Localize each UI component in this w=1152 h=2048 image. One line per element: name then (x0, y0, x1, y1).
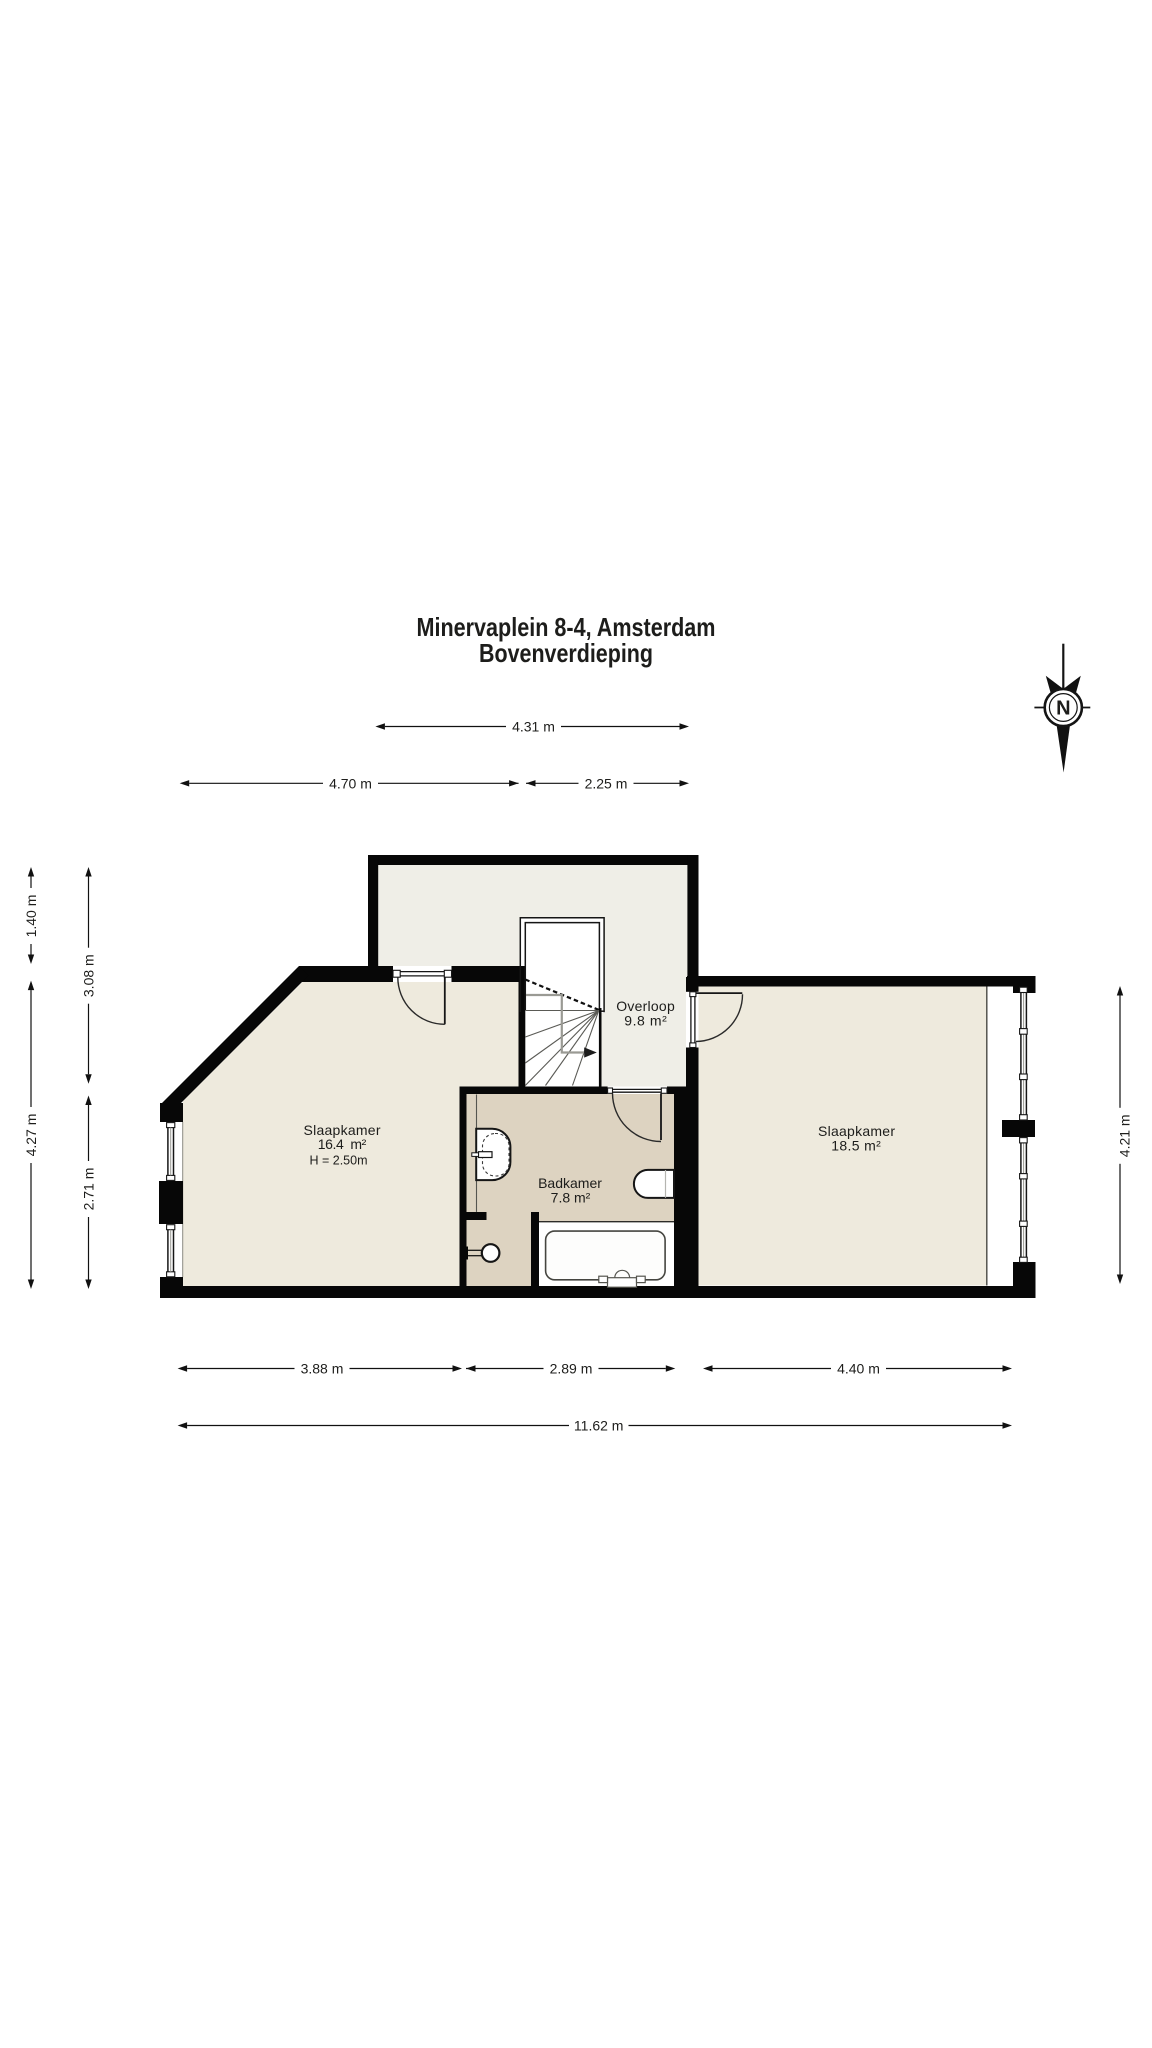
svg-text:16.4 m²: 16.4 m² (318, 1136, 367, 1152)
svg-text:Bovenverdieping: Bovenverdieping (479, 638, 653, 668)
svg-text:2.71 m: 2.71 m (81, 1168, 97, 1211)
svg-text:4.31 m: 4.31 m (512, 719, 555, 735)
svg-text:2.89 m: 2.89 m (550, 1361, 593, 1377)
svg-text:4.27 m: 4.27 m (23, 1114, 39, 1157)
svg-text:3.88 m: 3.88 m (301, 1361, 344, 1377)
svg-text:2.25 m: 2.25 m (585, 775, 628, 791)
svg-text:4.70 m: 4.70 m (329, 775, 372, 791)
svg-text:N: N (1056, 698, 1070, 720)
svg-text:18.5 m²: 18.5 m² (831, 1137, 881, 1153)
svg-text:1.40 m: 1.40 m (23, 895, 39, 938)
svg-text:4.21 m: 4.21 m (1116, 1114, 1132, 1157)
svg-text:11.62 m: 11.62 m (574, 1418, 624, 1434)
svg-text:H = 2.50m: H = 2.50m (309, 1154, 367, 1168)
svg-text:9.8 m²: 9.8 m² (624, 1013, 667, 1029)
svg-text:3.08 m: 3.08 m (81, 954, 97, 997)
svg-text:7.8 m²: 7.8 m² (551, 1190, 591, 1206)
svg-text:4.40 m: 4.40 m (837, 1361, 880, 1377)
